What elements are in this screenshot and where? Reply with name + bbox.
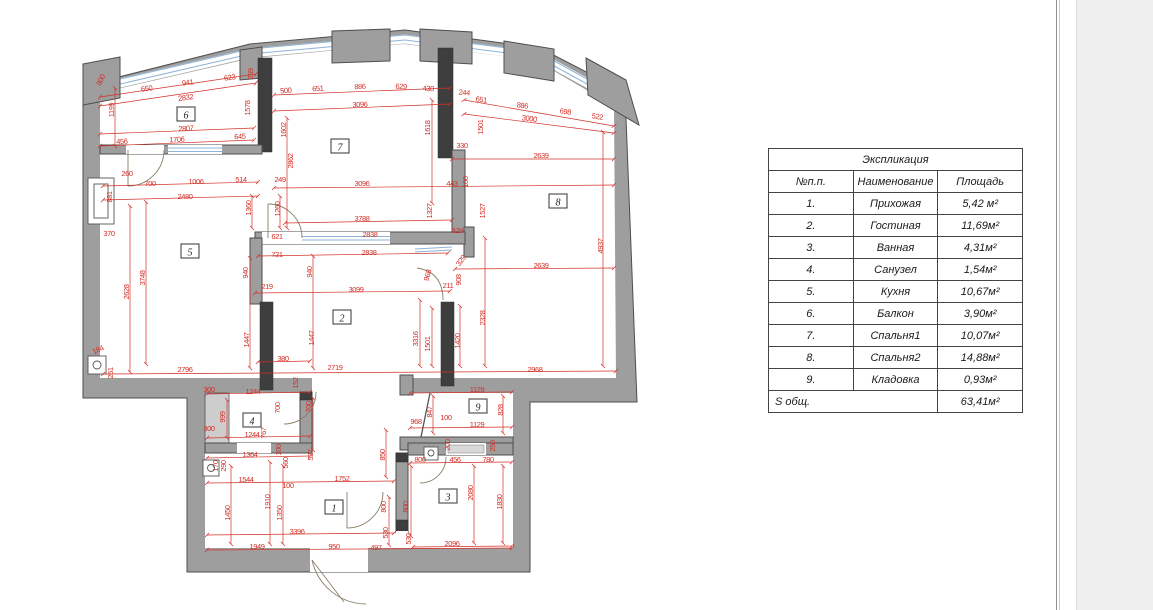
- dim-label: 249: [274, 175, 286, 184]
- dim-label: 300: [203, 424, 215, 433]
- room-area: 11,69м²: [938, 215, 1023, 237]
- dim-label: 3096: [354, 179, 369, 188]
- room-name: Санузел: [853, 259, 938, 281]
- right-scroll-panel[interactable]: [1076, 0, 1153, 610]
- dim-label: 1618: [423, 120, 432, 135]
- table-row: 7.Спальня110,07м²: [769, 325, 1023, 347]
- dim-label: 2719: [327, 363, 342, 372]
- room-number: 4: [250, 417, 255, 428]
- dim-label: 1327: [425, 203, 434, 218]
- dim-label: 908: [454, 274, 463, 286]
- dim-label: 1244: [244, 430, 259, 439]
- dim-label: 1129: [470, 385, 485, 394]
- dim-label: 430: [422, 84, 434, 94]
- dim-label: 886: [354, 82, 366, 91]
- dim-label: 497: [370, 543, 382, 552]
- dim-label: 527: [306, 449, 315, 461]
- dim-label: 645: [234, 132, 246, 142]
- table-title-row: Экспликация: [769, 149, 1023, 171]
- dim-label: 2328: [478, 310, 487, 325]
- dim-label: 3396: [289, 527, 304, 536]
- dim-label: 1501: [476, 119, 485, 134]
- room-area: 10,67м²: [938, 281, 1023, 303]
- dim-label: 1706: [169, 135, 185, 145]
- dim-label: 456: [116, 137, 128, 147]
- dim-label: 651: [312, 84, 324, 94]
- page-divider-line-2: [1059, 0, 1060, 610]
- room-area: 5,42 м²: [938, 193, 1023, 215]
- dim-label: 100: [461, 176, 470, 188]
- row-num: 7.: [769, 325, 854, 347]
- dim-label: 3099: [348, 285, 363, 294]
- room-number: 2: [340, 314, 345, 325]
- dim-label: 2796: [177, 365, 192, 374]
- dim-label: 2838: [362, 230, 377, 239]
- screen: 8006509416232592832157811992807456170664…: [0, 0, 1153, 610]
- room-name: Прихожая: [853, 193, 938, 215]
- room-area: 4,31м²: [938, 237, 1023, 259]
- dim-label: 700: [304, 401, 313, 413]
- table-row: 6.Балкон3,90м²: [769, 303, 1023, 325]
- room-box: 3: [439, 489, 457, 504]
- dim-label: 100: [282, 481, 294, 490]
- dim-label: 1199: [107, 103, 116, 118]
- dim-label: 2639: [533, 151, 548, 160]
- row-num: 2.: [769, 215, 854, 237]
- dim-label: 2862: [286, 153, 295, 168]
- dim-label: 623: [223, 72, 236, 83]
- room-number: 1: [332, 504, 337, 515]
- dim-label: 261: [106, 367, 115, 379]
- dim-label: 260: [121, 169, 133, 178]
- dim-label: 1447: [242, 332, 251, 347]
- floor-plan: 8006509416232592832157811992807456170664…: [0, 0, 700, 610]
- table-footer-row: S общ. 63,41м²: [769, 391, 1023, 413]
- room-area: 14,88м²: [938, 347, 1023, 369]
- dim-label: 1949: [249, 542, 264, 551]
- dim-label: 767: [259, 427, 268, 439]
- row-num: 8.: [769, 347, 854, 369]
- dim-label: 152: [291, 377, 300, 389]
- dim-label: 1602: [279, 122, 288, 137]
- table-row: 9.Кладовка0,93м²: [769, 369, 1023, 391]
- dim-label: 1450: [223, 505, 232, 520]
- dim-label: 300: [203, 385, 215, 394]
- dim-label: 800: [414, 455, 426, 464]
- dim-label: 4937: [596, 238, 605, 253]
- room-number: 5: [188, 248, 193, 259]
- dim-label: 3000: [521, 113, 537, 124]
- dim-label: 2639: [533, 261, 548, 270]
- dim-label: 999: [218, 411, 227, 423]
- dim-label: 250: [488, 440, 497, 452]
- dim-label: 2096: [444, 539, 459, 548]
- dim-label: 100: [274, 444, 283, 456]
- dim-label: 1364: [242, 450, 257, 459]
- table-row: 5.Кухня10,67м²: [769, 281, 1023, 303]
- dim-label: 698: [559, 106, 572, 117]
- dim-label: 456: [449, 455, 461, 464]
- room-number: 6: [184, 111, 189, 122]
- room-number: 9: [476, 403, 481, 414]
- dim-label: 1910: [263, 494, 272, 509]
- table-row: 3.Ванная4,31м²: [769, 237, 1023, 259]
- dim-label: 940: [241, 267, 250, 279]
- dim-label: 1544: [238, 475, 253, 484]
- room-name: Спальня2: [853, 347, 938, 369]
- row-num: 5.: [769, 281, 854, 303]
- dim-label: 329: [451, 226, 463, 235]
- room-name: Гостиная: [853, 215, 938, 237]
- dim-label: 1129: [470, 420, 485, 429]
- dim-label: 629: [395, 82, 407, 91]
- dim-label: 443: [446, 179, 458, 188]
- room-area: 0,93м²: [938, 369, 1023, 391]
- dim-label: 3788: [354, 214, 369, 223]
- dim-label: 828: [496, 404, 505, 416]
- dim-label: 2968: [527, 365, 542, 374]
- dim-label: 2080: [466, 485, 475, 500]
- dim-label: 886: [516, 100, 529, 110]
- dim-label: 2628: [122, 284, 131, 299]
- dim-label: 700: [273, 402, 282, 414]
- table-title: Экспликация: [769, 149, 1023, 171]
- room-area: 10,07м²: [938, 325, 1023, 347]
- dim-label: 514: [235, 175, 247, 184]
- dim-label: 1360: [244, 200, 253, 215]
- dim-label: 330: [456, 141, 468, 150]
- row-num: 3.: [769, 237, 854, 259]
- room-box: 2: [333, 310, 351, 325]
- dim-label: 1447: [307, 330, 316, 345]
- dim-label: 3096: [352, 100, 368, 110]
- table-row: 4.Санузел1,54м²: [769, 259, 1023, 281]
- dim-label: 780: [482, 455, 494, 464]
- room-name: Ванная: [853, 237, 938, 259]
- room-name: Балкон: [853, 303, 938, 325]
- room-box: 6: [177, 107, 195, 122]
- dim-label: 1501: [423, 336, 432, 351]
- dim-label: 3316: [411, 331, 420, 346]
- dim-label: 2480: [177, 192, 192, 201]
- dim-label: 211: [443, 281, 454, 290]
- dim-label: 219: [261, 282, 273, 291]
- room-name: Кладовка: [853, 369, 938, 391]
- footer-total-label: S общ.: [769, 391, 938, 413]
- dim-label: 1244: [245, 387, 260, 396]
- footer-total-value: 63,41м²: [938, 391, 1023, 413]
- dim-label: 1350: [275, 505, 284, 520]
- dim-label: 700: [144, 179, 156, 188]
- dim-label: 847: [425, 406, 434, 418]
- header-name: Наименование: [853, 171, 938, 193]
- room-box: 4: [243, 413, 261, 428]
- dim-label: 650: [140, 83, 153, 94]
- row-num: 1.: [769, 193, 854, 215]
- dim-label: 259: [246, 68, 255, 80]
- dim-label: 800: [379, 501, 388, 513]
- dim-label: 560: [281, 457, 290, 469]
- dim-label: 1420: [453, 333, 462, 348]
- row-num: 9.: [769, 369, 854, 391]
- room-box: 8: [549, 194, 567, 209]
- header-area: Площадь: [938, 171, 1023, 193]
- dim-label: 530: [381, 527, 390, 539]
- dim-label: 941: [181, 77, 194, 88]
- dim-label: 881: [105, 191, 114, 203]
- table-row: 8.Спальня214,88м²: [769, 347, 1023, 369]
- room-number: 8: [556, 198, 561, 209]
- header-num: №п.п.: [769, 171, 854, 193]
- dim-label: 530: [404, 533, 413, 545]
- table-row: 2.Гостиная11,69м²: [769, 215, 1023, 237]
- page-divider-line: [1056, 0, 1057, 610]
- row-num: 4.: [769, 259, 854, 281]
- dim-label: 940: [305, 266, 314, 278]
- room-box: 1: [325, 500, 343, 515]
- dim-label: 850: [378, 449, 387, 461]
- table-header-row: №п.п. Наименование Площадь: [769, 171, 1023, 193]
- dim-label: 721: [271, 250, 283, 259]
- room-name: Спальня1: [853, 325, 938, 347]
- room-number: 3: [445, 493, 451, 504]
- outer-walls: [83, 30, 637, 572]
- dim-label: 651: [475, 94, 488, 104]
- dim-label: 370: [103, 229, 115, 238]
- room-area: 1,54м²: [938, 259, 1023, 281]
- dim-label: 100: [440, 413, 452, 422]
- dim-label: 1752: [334, 474, 349, 483]
- dim-label: 500: [280, 86, 292, 96]
- dim-label: 1830: [495, 494, 504, 509]
- dim-label: 380: [277, 354, 289, 363]
- dim-label: 522: [591, 111, 604, 122]
- dim-label: 1260: [273, 201, 282, 216]
- room-name: Кухня: [853, 281, 938, 303]
- dim-label: 200: [443, 439, 452, 451]
- dim-label: 244: [458, 88, 470, 98]
- dim-label: 800: [401, 501, 410, 513]
- room-box: 9: [469, 399, 487, 414]
- room-box: 7: [331, 139, 349, 154]
- dim-label: 2807: [178, 124, 194, 134]
- dim-label: 1006: [188, 177, 203, 186]
- row-num: 6.: [769, 303, 854, 325]
- dim-label: 290: [219, 460, 228, 472]
- dim-label: 2838: [361, 248, 376, 257]
- dim-label: 950: [328, 542, 340, 551]
- dim-label: 1527: [478, 203, 487, 218]
- table-row: 1.Прихожая5,42 м²: [769, 193, 1023, 215]
- dim-label: 1578: [243, 100, 252, 115]
- explication-table: Экспликация №п.п. Наименование Площадь 1…: [768, 148, 1023, 413]
- room-area: 3,90м²: [938, 303, 1023, 325]
- dim-label: 621: [271, 232, 283, 241]
- room-box: 5: [181, 244, 199, 259]
- dim-label: 968: [410, 417, 422, 426]
- dim-label: 3748: [138, 270, 147, 285]
